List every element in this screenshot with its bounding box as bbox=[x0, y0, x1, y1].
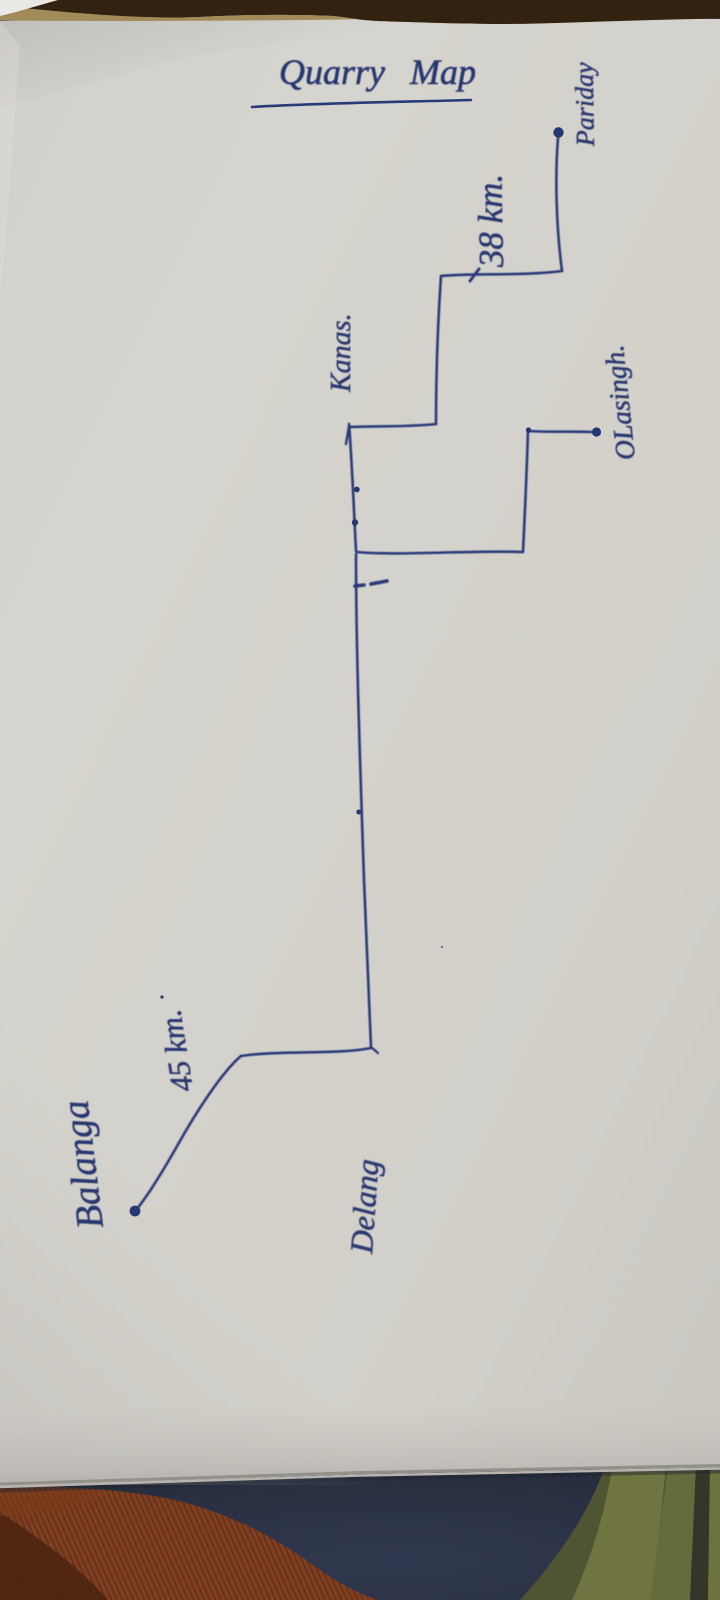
svg-text:Kanas.: Kanas. bbox=[326, 313, 357, 393]
svg-text:38 km.: 38 km. bbox=[470, 174, 511, 269]
svg-text:Pariday: Pariday bbox=[570, 62, 600, 148]
svg-text:Map: Map bbox=[409, 52, 476, 92]
svg-text:Quarry: Quarry bbox=[279, 52, 385, 92]
svg-text:Delang: Delang bbox=[343, 1158, 386, 1255]
